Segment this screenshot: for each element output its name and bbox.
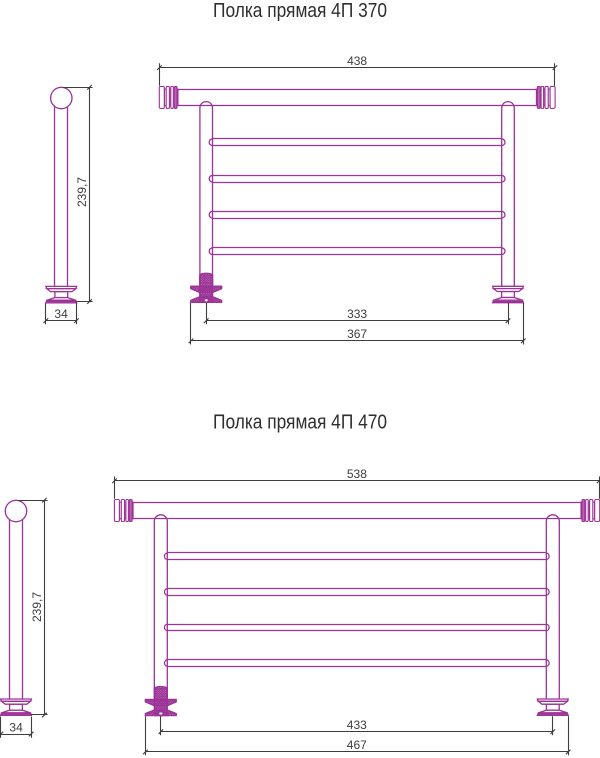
svg-text:239,7: 239,7 <box>30 592 44 622</box>
svg-text:239,7: 239,7 <box>75 177 89 207</box>
svg-text:34: 34 <box>9 720 23 734</box>
svg-text:Полка прямая 4П 370: Полка прямая 4П 370 <box>213 0 387 22</box>
svg-text:438: 438 <box>347 54 367 68</box>
svg-text:433: 433 <box>347 718 367 732</box>
svg-text:367: 367 <box>347 327 367 341</box>
svg-text:538: 538 <box>347 467 367 481</box>
svg-text:Полка прямая 4П 470: Полка прямая 4П 470 <box>213 411 387 433</box>
svg-text:467: 467 <box>347 738 367 752</box>
svg-text:34: 34 <box>54 307 68 321</box>
svg-text:333: 333 <box>347 307 367 321</box>
